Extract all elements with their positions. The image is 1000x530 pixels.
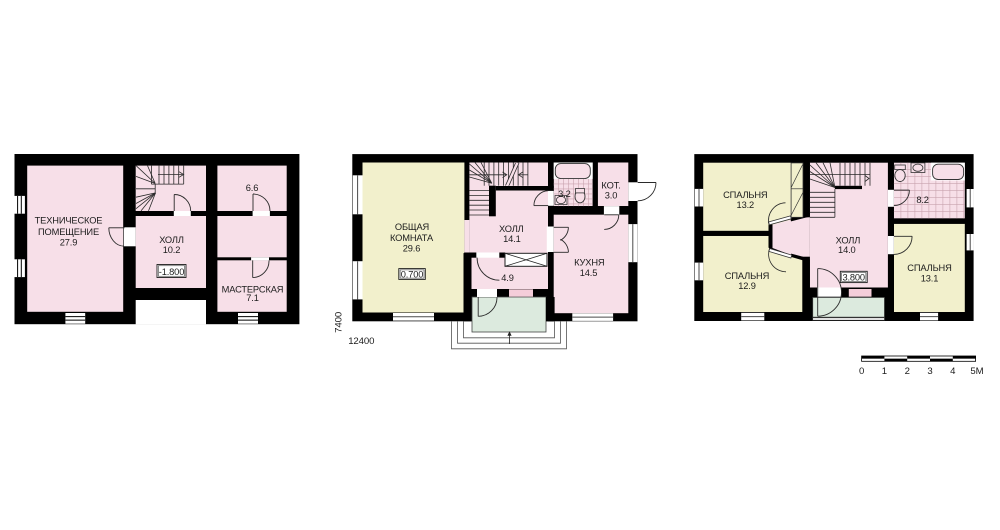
svg-text:10.2: 10.2: [163, 245, 181, 255]
svg-text:ХОЛЛ: ХОЛЛ: [499, 224, 524, 234]
svg-text:СПАЛЬНЯ: СПАЛЬНЯ: [907, 263, 951, 273]
svg-text:ПОМЕЩЕНИЕ: ПОМЕЩЕНИЕ: [38, 227, 99, 237]
svg-text:3.800: 3.800: [842, 273, 865, 283]
svg-text:ХОЛЛ: ХОЛЛ: [836, 235, 861, 245]
svg-text:13.2: 13.2: [737, 200, 755, 210]
svg-text:4: 4: [950, 366, 956, 377]
svg-text:3.2: 3.2: [558, 189, 570, 199]
svg-text:3.0: 3.0: [605, 190, 617, 200]
svg-text:13.1: 13.1: [921, 273, 939, 283]
svg-text:7400: 7400: [334, 312, 345, 333]
svg-text:14.0: 14.0: [838, 245, 856, 255]
svg-text:0: 0: [859, 366, 864, 377]
svg-text:3: 3: [927, 366, 932, 377]
svg-text:12.9: 12.9: [738, 281, 756, 291]
svg-text:7.1: 7.1: [246, 293, 258, 303]
svg-text:1: 1: [882, 366, 887, 377]
svg-text:ТЕХНИЧЕСКОЕ: ТЕХНИЧЕСКОЕ: [35, 216, 103, 226]
svg-text:14.5: 14.5: [580, 268, 598, 278]
svg-text:-1.800: -1.800: [159, 267, 184, 277]
svg-text:0.700: 0.700: [401, 269, 424, 279]
svg-text:СПАЛЬНЯ: СПАЛЬНЯ: [725, 271, 769, 281]
svg-text:КОМНАТА: КОМНАТА: [390, 233, 434, 243]
svg-text:12400: 12400: [348, 336, 374, 347]
svg-text:СПАЛЬНЯ: СПАЛЬНЯ: [723, 190, 767, 200]
svg-text:27.9: 27.9: [60, 238, 78, 248]
svg-text:4.9: 4.9: [501, 273, 513, 283]
svg-text:2: 2: [905, 366, 910, 377]
svg-text:14.1: 14.1: [503, 234, 521, 244]
svg-text:КУХНЯ: КУХНЯ: [574, 258, 604, 268]
svg-text:ОБЩАЯ: ОБЩАЯ: [395, 222, 429, 232]
svg-text:8.2: 8.2: [916, 195, 928, 205]
svg-text:29.6: 29.6: [403, 243, 421, 253]
svg-text:6.6: 6.6: [246, 183, 258, 193]
svg-text:5М: 5М: [970, 366, 983, 377]
svg-text:КОТ.: КОТ.: [601, 180, 620, 190]
svg-text:ХОЛЛ: ХОЛЛ: [159, 235, 184, 245]
